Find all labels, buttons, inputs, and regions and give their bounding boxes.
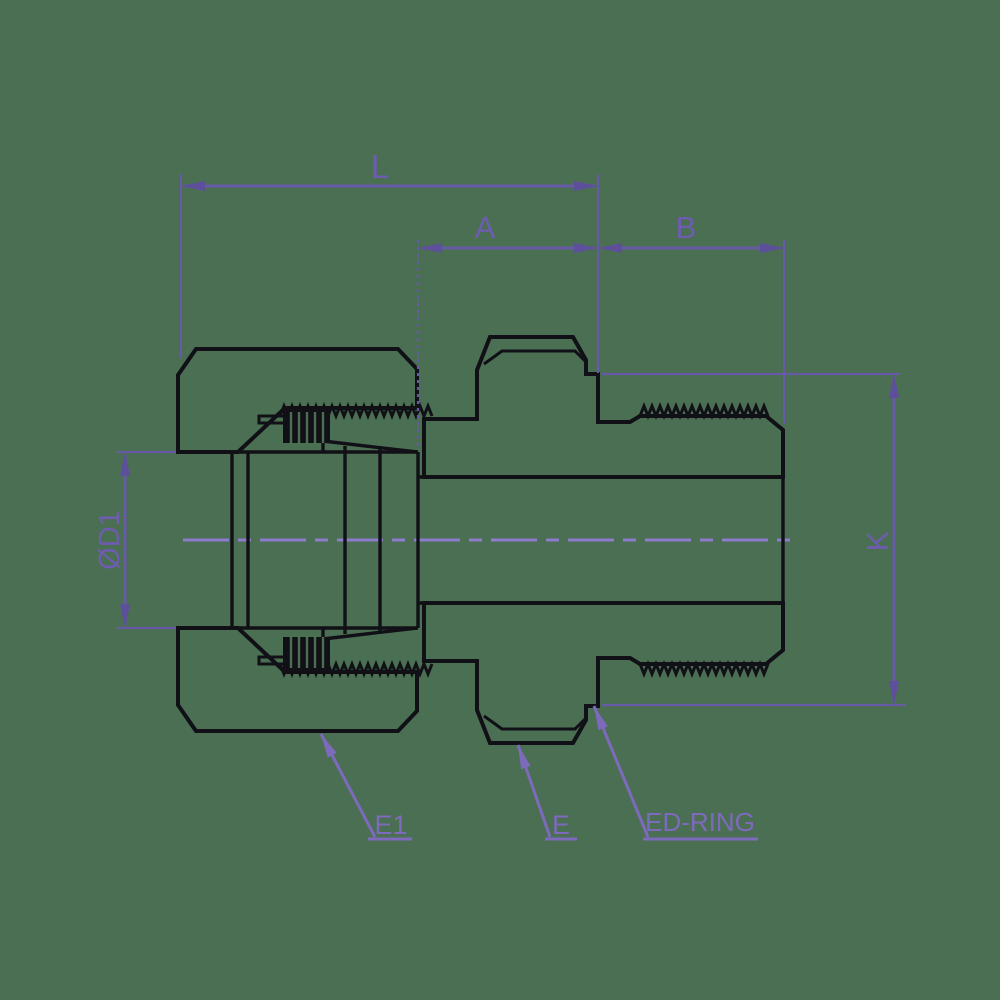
dimension-label-D1: ØD1 (94, 510, 126, 570)
dimension-A: A (418, 210, 598, 448)
dimension-label-B: B (676, 210, 697, 245)
hex-chamfer-line-bottom (484, 716, 586, 729)
thread-block-top (259, 409, 330, 443)
leader-E: E (513, 743, 577, 840)
dimension-label-K: K (860, 530, 895, 551)
body-top-half (424, 337, 783, 477)
leader-label-E: E (552, 810, 570, 840)
dimension-B: B (598, 210, 784, 424)
hex-chamfer-line-top (484, 351, 586, 364)
thread-block-bottom (259, 637, 330, 671)
dimension-label-L: L (371, 148, 389, 185)
leader-label-E1: E1 (374, 810, 407, 840)
dimension-D1: ØD1 (94, 452, 176, 628)
leader-ED-RING: ED-RING (589, 704, 758, 839)
drawing-canvas: L A B K ØD1 E1 (0, 0, 1000, 1000)
leader-label-ED-RING: ED-RING (645, 807, 755, 837)
dimension-L: L (181, 148, 598, 373)
fitting-section-drawing: L A B K ØD1 E1 (0, 0, 1000, 1000)
leader-E1: E1 (317, 732, 412, 840)
dimension-label-A: A (475, 210, 496, 245)
